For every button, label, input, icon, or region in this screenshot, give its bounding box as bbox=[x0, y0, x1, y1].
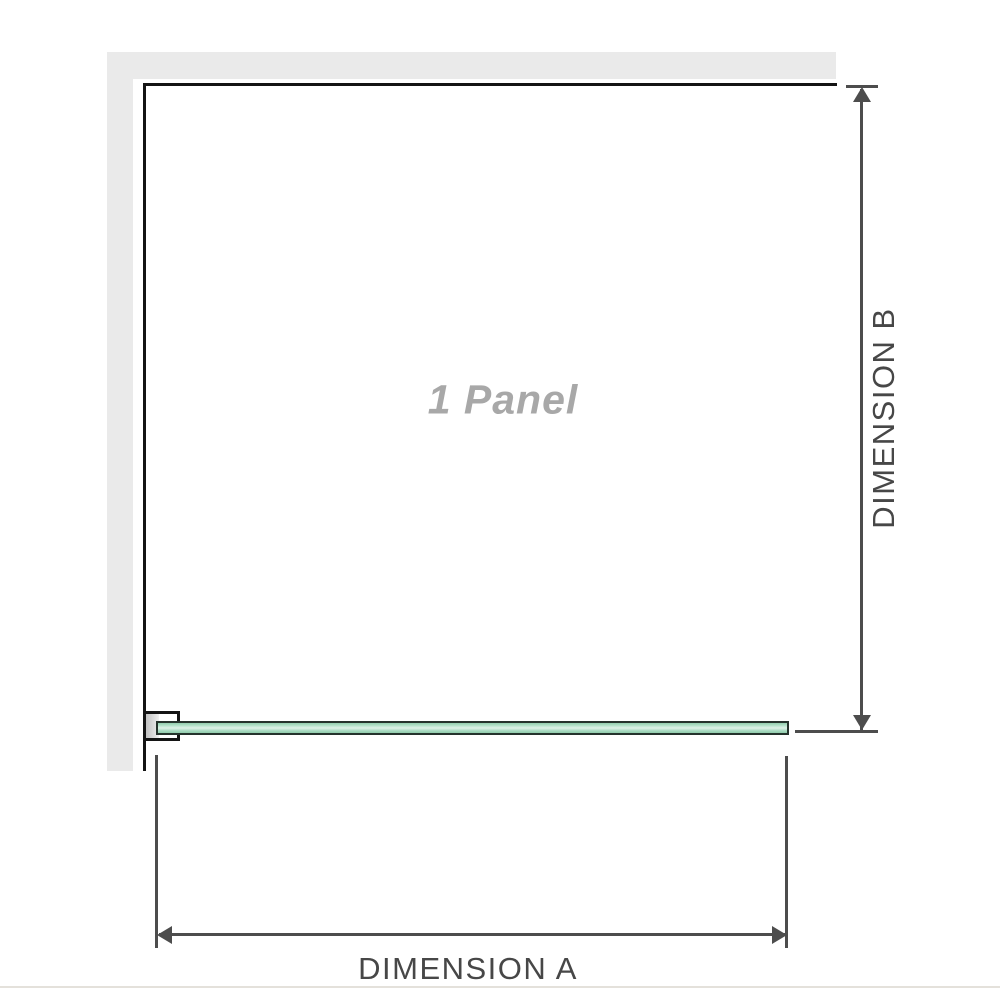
up-arrowhead-icon bbox=[853, 87, 871, 102]
dimension-a-right-extension bbox=[785, 756, 788, 948]
wall-top bbox=[107, 52, 836, 79]
panel-outline-top-edge bbox=[143, 83, 837, 86]
dimension-a-label: DIMENSION A bbox=[358, 951, 578, 987]
image-baseline bbox=[0, 986, 1000, 988]
glass-panel bbox=[156, 721, 789, 735]
dimension-a-left-extension bbox=[155, 755, 158, 948]
dimension-b-line bbox=[860, 89, 863, 730]
panel-outline-left-edge bbox=[143, 83, 146, 771]
wall-left bbox=[107, 52, 133, 771]
right-arrowhead-icon bbox=[772, 926, 787, 944]
panel-count-label: 1 Panel bbox=[428, 377, 579, 424]
dimension-a-line bbox=[159, 933, 785, 936]
dimension-b-bottom-tick bbox=[795, 730, 878, 733]
down-arrowhead-icon bbox=[853, 715, 871, 730]
dimension-b-label: DIMENSION B bbox=[866, 307, 902, 528]
dimension-diagram: 1 Panel DIMENSION B DIMENSION A bbox=[0, 0, 1000, 1000]
left-arrowhead-icon bbox=[157, 926, 172, 944]
